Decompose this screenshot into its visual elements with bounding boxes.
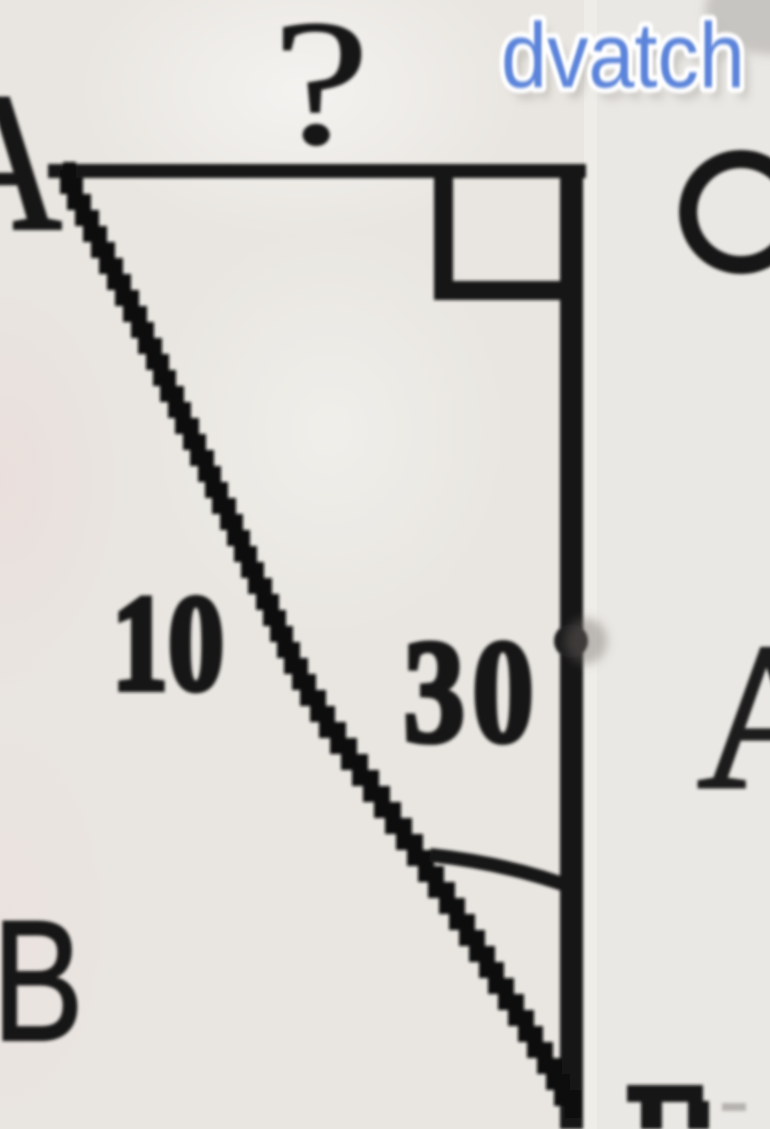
svg-text:10: 10 [112,568,224,720]
svg-text:dvatch: dvatch [501,4,745,107]
svg-text:B: B [0,885,84,1077]
svg-text:30: 30 [403,609,541,774]
svg-text:?: ? [272,0,369,182]
svg-text:A: A [697,601,770,833]
svg-text:A: A [0,55,61,272]
